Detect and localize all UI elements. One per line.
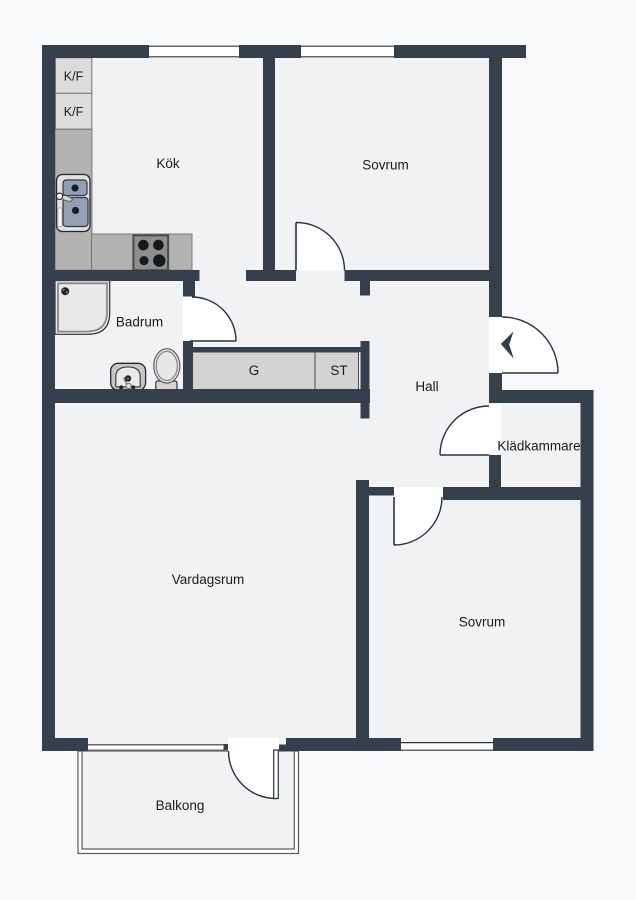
svg-text:Balkong: Balkong <box>156 798 205 813</box>
svg-text:Vardagsrum: Vardagsrum <box>172 572 245 587</box>
svg-text:Badrum: Badrum <box>116 315 163 330</box>
svg-text:Sovrum: Sovrum <box>362 158 409 173</box>
svg-text:Hall: Hall <box>415 379 438 394</box>
svg-text:ST: ST <box>330 363 347 378</box>
svg-text:K/F: K/F <box>64 70 84 84</box>
svg-text:Sovrum: Sovrum <box>459 614 506 629</box>
svg-text:K/F: K/F <box>64 105 84 119</box>
svg-text:Kök: Kök <box>156 156 180 171</box>
svg-text:G: G <box>249 363 260 378</box>
svg-text:Klädkammare: Klädkammare <box>497 439 580 454</box>
